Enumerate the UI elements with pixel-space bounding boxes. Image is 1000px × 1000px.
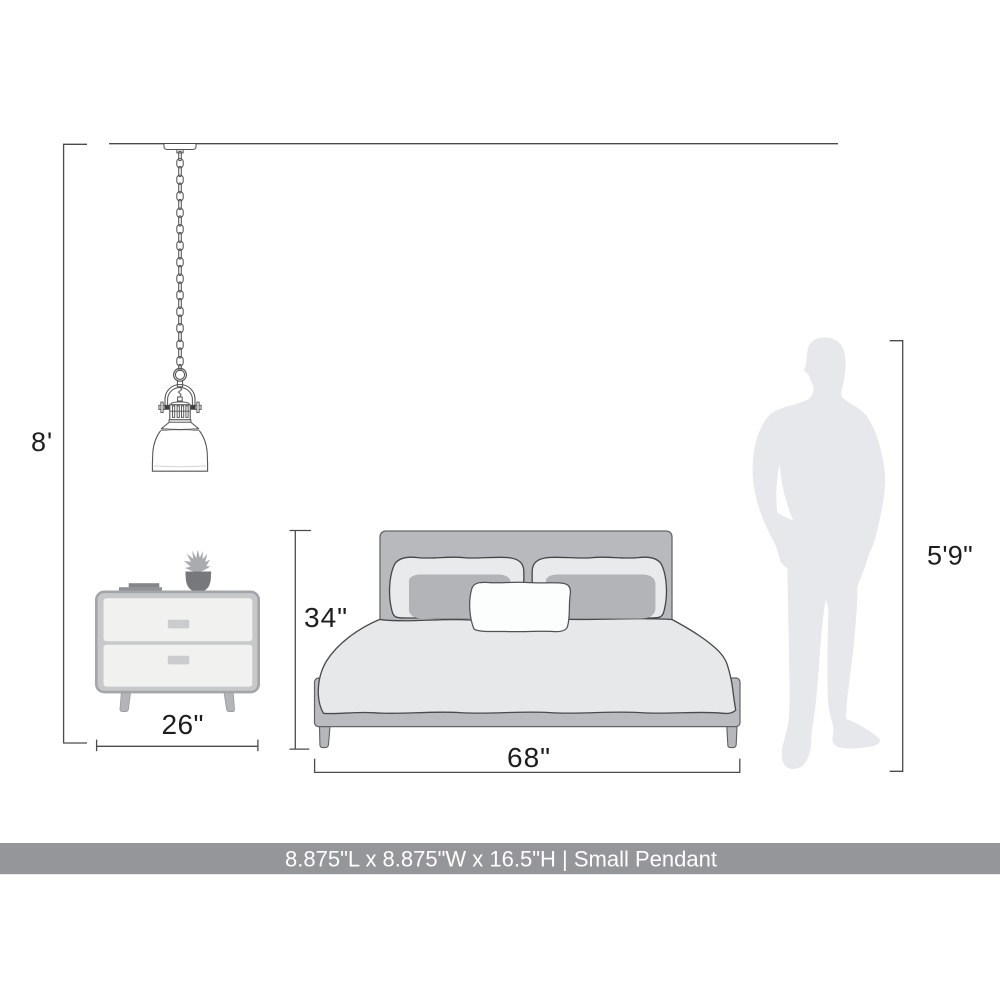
svg-text:8': 8' [31,427,53,457]
svg-text:8.875"L x 8.875"W x 16.5"H | S: 8.875"L x 8.875"W x 16.5"H | Small Penda… [285,847,717,872]
svg-text:26": 26" [162,709,204,740]
svg-text:5'9": 5'9" [927,541,973,571]
svg-text:34": 34" [304,602,348,633]
svg-text:68": 68" [507,742,551,773]
